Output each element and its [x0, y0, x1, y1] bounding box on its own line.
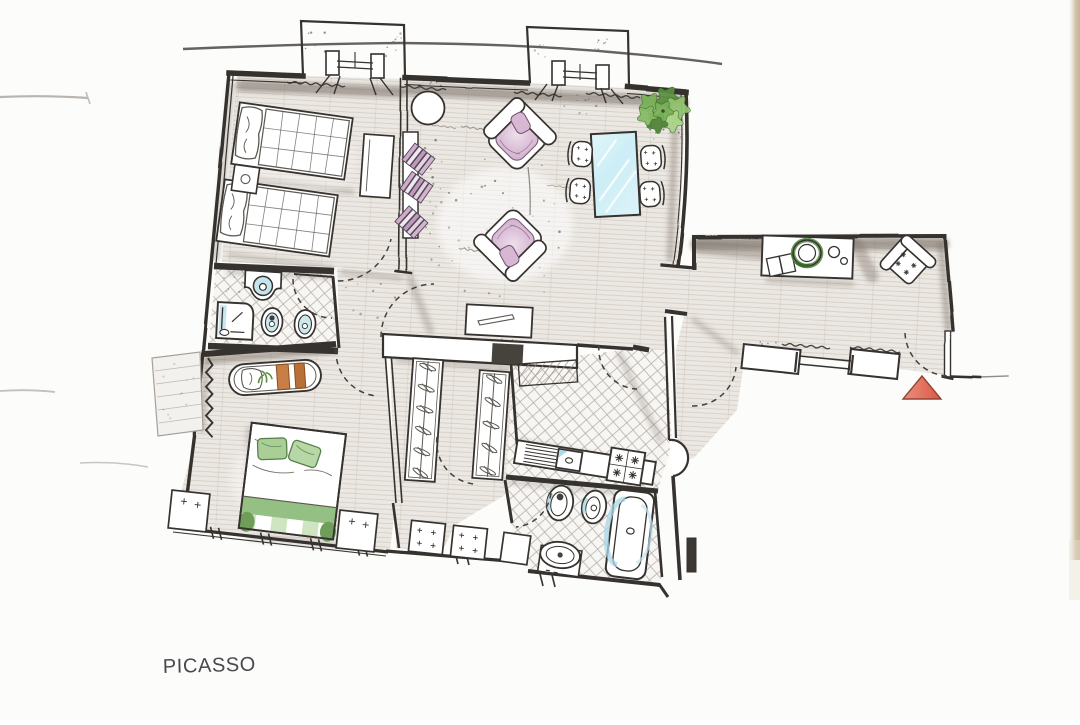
- svg-text:PICASSO: PICASSO: [163, 654, 257, 678]
